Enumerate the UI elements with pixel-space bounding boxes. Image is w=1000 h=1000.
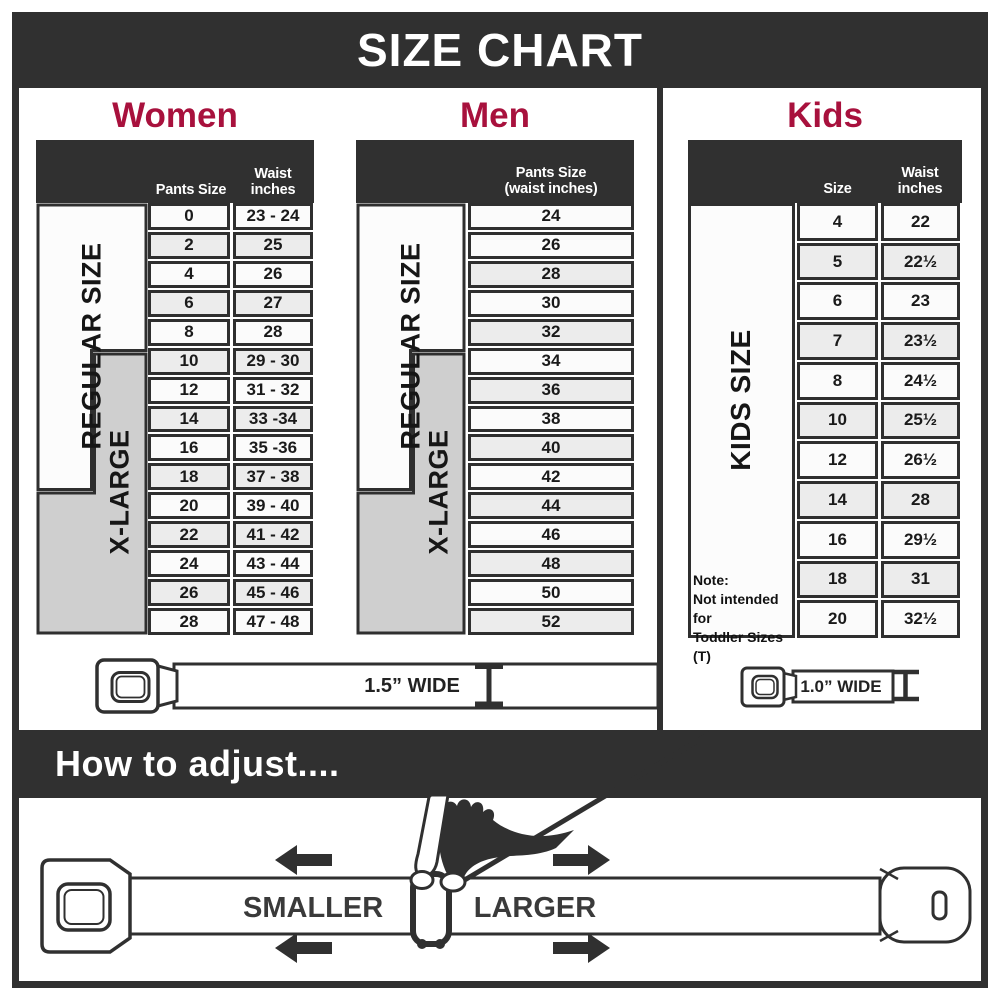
cell-value: 50 bbox=[468, 579, 634, 606]
table-row: 1433 -34 bbox=[148, 406, 313, 433]
cell-size: 28 bbox=[148, 608, 230, 635]
cell-waist: 31 - 32 bbox=[233, 377, 313, 404]
cell-size: 26 bbox=[148, 579, 230, 606]
right-arrow-icon bbox=[553, 933, 610, 963]
cell-value: 40 bbox=[468, 434, 634, 461]
cell-waist: 28 bbox=[233, 319, 313, 346]
cell-waist: 25 bbox=[233, 232, 313, 259]
women-regular-label: REGULAR SIZE bbox=[77, 242, 108, 449]
cell-size: 18 bbox=[148, 463, 230, 490]
table-row: 1231 - 32 bbox=[148, 377, 313, 404]
belt-tip bbox=[880, 868, 970, 942]
adult-buckle-housing bbox=[97, 660, 158, 712]
cell-waist: 22 bbox=[881, 203, 960, 241]
cell-size: 5 bbox=[797, 243, 878, 281]
table-row: 24 bbox=[468, 203, 634, 230]
cell-size: 14 bbox=[148, 406, 230, 433]
men-col-header: Pants Size (waist inches) bbox=[468, 165, 634, 197]
cell-value: 32 bbox=[468, 319, 634, 346]
table-row: 36 bbox=[468, 377, 634, 404]
table-row: 30 bbox=[468, 290, 634, 317]
cell-waist: 23½ bbox=[881, 322, 960, 360]
cell-waist: 28 bbox=[881, 481, 960, 519]
table-row: 1428 bbox=[797, 481, 960, 519]
kids-buckle-button bbox=[753, 676, 778, 698]
cell-waist: 31 bbox=[881, 561, 960, 599]
cell-waist: 47 - 48 bbox=[233, 608, 313, 635]
cell-size: 2 bbox=[148, 232, 230, 259]
cell-size: 8 bbox=[148, 319, 230, 346]
left-arrow-icon bbox=[275, 933, 332, 963]
table-row: 623 bbox=[797, 282, 960, 320]
cell-waist: 24½ bbox=[881, 362, 960, 400]
cell-waist: 37 - 38 bbox=[233, 463, 313, 490]
women-heading: Women bbox=[36, 96, 314, 136]
cell-waist: 27 bbox=[233, 290, 313, 317]
adult-buckle-latch bbox=[158, 666, 177, 706]
table-row: 1837 - 38 bbox=[148, 463, 313, 490]
table-row: 28 bbox=[468, 261, 634, 288]
kids-belt-width-label: 1.0” WIDE bbox=[781, 677, 901, 697]
kids-col2-header: Waist inches bbox=[880, 165, 960, 197]
women-table-header: Pants Size Waist inches bbox=[36, 140, 314, 203]
cell-waist: 35 -36 bbox=[233, 434, 313, 461]
cell-value: 38 bbox=[468, 406, 634, 433]
table-row: 2039 - 40 bbox=[148, 492, 313, 519]
table-row: 023 - 24 bbox=[148, 203, 313, 230]
men-heading: Men bbox=[356, 96, 634, 136]
table-row: 46 bbox=[468, 521, 634, 548]
women-xlarge-label: X-LARGE bbox=[105, 430, 136, 555]
cell-value: 42 bbox=[468, 463, 634, 490]
cell-waist: 43 - 44 bbox=[233, 550, 313, 577]
table-row: 522½ bbox=[797, 243, 960, 281]
cell-size: 16 bbox=[148, 434, 230, 461]
cell-size: 10 bbox=[148, 348, 230, 375]
table-row: 1029 - 30 bbox=[148, 348, 313, 375]
men-size-table: 242628303234363840424446485052 bbox=[468, 203, 634, 635]
table-row: 34 bbox=[468, 348, 634, 375]
table-row: 44 bbox=[468, 492, 634, 519]
cell-size: 4 bbox=[148, 261, 230, 288]
kids-size-label: KIDS SIZE bbox=[725, 329, 757, 470]
cell-size: 7 bbox=[797, 322, 878, 360]
left-arrow-icon bbox=[275, 845, 332, 875]
table-row: 1226½ bbox=[797, 441, 960, 479]
adjust-buckle bbox=[42, 860, 130, 952]
cell-waist: 29½ bbox=[881, 521, 960, 559]
cell-size: 18 bbox=[797, 561, 878, 599]
table-row: 225 bbox=[148, 232, 313, 259]
table-row: 627 bbox=[148, 290, 313, 317]
cell-size: 0 bbox=[148, 203, 230, 230]
cell-waist: 41 - 42 bbox=[233, 521, 313, 548]
fingertip bbox=[411, 872, 433, 889]
cell-size: 22 bbox=[148, 521, 230, 548]
size-chart-page: SIZE CHART Women Pants Size Waist inches… bbox=[0, 0, 1000, 1000]
cell-size: 8 bbox=[797, 362, 878, 400]
table-row: 2645 - 46 bbox=[148, 579, 313, 606]
cell-waist: 26 bbox=[233, 261, 313, 288]
cell-size: 6 bbox=[148, 290, 230, 317]
larger-label: LARGER bbox=[465, 892, 605, 925]
cell-value: 48 bbox=[468, 550, 634, 577]
cell-value: 28 bbox=[468, 261, 634, 288]
cell-waist: 33 -34 bbox=[233, 406, 313, 433]
cell-size: 4 bbox=[797, 203, 878, 241]
table-row: 1831 bbox=[797, 561, 960, 599]
how-to-adjust-title: How to adjust.... bbox=[19, 743, 340, 785]
cell-size: 16 bbox=[797, 521, 878, 559]
cell-size: 12 bbox=[797, 441, 878, 479]
cell-value: 36 bbox=[468, 377, 634, 404]
cell-waist: 39 - 40 bbox=[233, 492, 313, 519]
cell-value: 52 bbox=[468, 608, 634, 635]
table-row: 50 bbox=[468, 579, 634, 606]
adult-belt-width-label: 1.5” WIDE bbox=[342, 675, 482, 698]
cell-waist: 29 - 30 bbox=[233, 348, 313, 375]
cell-size: 10 bbox=[797, 402, 878, 440]
cell-value: 26 bbox=[468, 232, 634, 259]
adult-buckle-button bbox=[112, 673, 149, 702]
table-row: 2847 - 48 bbox=[148, 608, 313, 635]
hand-icon bbox=[411, 795, 574, 891]
women-size-table: 023 - 242254266278281029 - 301231 - 3214… bbox=[148, 203, 313, 635]
cell-waist: 45 - 46 bbox=[233, 579, 313, 606]
table-row: 42 bbox=[468, 463, 634, 490]
table-row: 26 bbox=[468, 232, 634, 259]
cell-value: 24 bbox=[468, 203, 634, 230]
table-row: 426 bbox=[148, 261, 313, 288]
table-row: 38 bbox=[468, 406, 634, 433]
cell-waist: 22½ bbox=[881, 243, 960, 281]
cell-value: 30 bbox=[468, 290, 634, 317]
smaller-label: SMALLER bbox=[243, 892, 383, 925]
cell-size: 6 bbox=[797, 282, 878, 320]
cell-waist: 23 - 24 bbox=[233, 203, 313, 230]
fingertip bbox=[441, 873, 465, 891]
cell-value: 34 bbox=[468, 348, 634, 375]
kids-note: Note: Not intended for Toddler Sizes (T) bbox=[693, 571, 793, 666]
page-title: SIZE CHART bbox=[357, 23, 643, 77]
women-col2-header: Waist inches bbox=[233, 166, 313, 198]
table-row: 723½ bbox=[797, 322, 960, 360]
kids-heading: Kids bbox=[688, 96, 962, 136]
table-row: 824½ bbox=[797, 362, 960, 400]
table-row: 2443 - 44 bbox=[148, 550, 313, 577]
men-regular-label: REGULAR SIZE bbox=[396, 242, 427, 449]
cell-size: 14 bbox=[797, 481, 878, 519]
table-row: 1025½ bbox=[797, 402, 960, 440]
cell-size: 24 bbox=[148, 550, 230, 577]
table-row: 1635 -36 bbox=[148, 434, 313, 461]
belt-slider bbox=[413, 874, 449, 949]
men-table-header: Pants Size (waist inches) bbox=[356, 140, 634, 203]
section-divider bbox=[657, 88, 663, 730]
size-chart-banner: SIZE CHART bbox=[12, 12, 988, 88]
cell-waist: 26½ bbox=[881, 441, 960, 479]
table-row: 1629½ bbox=[797, 521, 960, 559]
cell-value: 46 bbox=[468, 521, 634, 548]
table-row: 828 bbox=[148, 319, 313, 346]
kids-table-header: Size Waist inches bbox=[688, 140, 962, 203]
table-row: 48 bbox=[468, 550, 634, 577]
cell-waist: 32½ bbox=[881, 600, 960, 638]
table-row: 40 bbox=[468, 434, 634, 461]
table-row: 32 bbox=[468, 319, 634, 346]
men-xlarge-label: X-LARGE bbox=[424, 430, 455, 555]
cell-value: 44 bbox=[468, 492, 634, 519]
kids-size-table: 422522½623723½824½1025½1226½14281629½183… bbox=[797, 203, 960, 638]
cell-size: 20 bbox=[797, 600, 878, 638]
how-to-adjust-band: How to adjust.... bbox=[19, 730, 981, 798]
table-row: 422 bbox=[797, 203, 960, 241]
table-row: 2032½ bbox=[797, 600, 960, 638]
cell-size: 20 bbox=[148, 492, 230, 519]
table-row: 2241 - 42 bbox=[148, 521, 313, 548]
kids-buckle-housing bbox=[742, 668, 784, 706]
cell-waist: 25½ bbox=[881, 402, 960, 440]
women-col1-header: Pants Size bbox=[149, 182, 233, 198]
table-row: 52 bbox=[468, 608, 634, 635]
belt-tip-slot bbox=[933, 892, 946, 919]
kids-col1-header: Size bbox=[797, 181, 878, 197]
right-arrow-icon bbox=[553, 845, 610, 875]
index-finger bbox=[416, 795, 448, 876]
cell-size: 12 bbox=[148, 377, 230, 404]
cell-waist: 23 bbox=[881, 282, 960, 320]
